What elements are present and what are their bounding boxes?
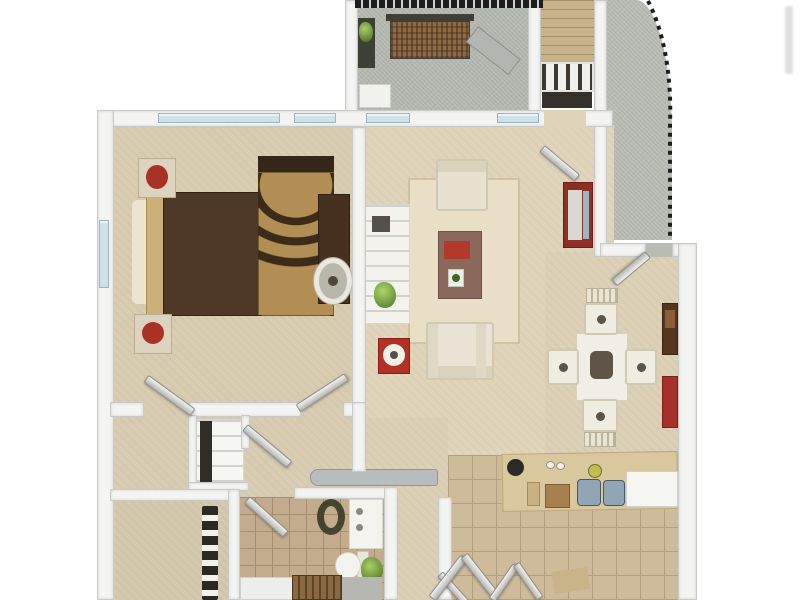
- wall-bathroom-top: [294, 487, 396, 499]
- storage-dark-mat: [542, 92, 592, 108]
- etagere-plant: [374, 282, 396, 308]
- nightstand-top-lamp: [146, 165, 168, 189]
- patio-bench-back: [386, 14, 474, 21]
- counter-bowl: [588, 464, 602, 478]
- kitchen-sink: [507, 459, 524, 476]
- bath-rug: [317, 499, 345, 535]
- hanging-clothes: [202, 506, 218, 600]
- loveseat: [436, 159, 488, 211]
- dining-centerpiece: [590, 351, 613, 379]
- bath-vanity: [349, 499, 383, 549]
- cabinet-drawer: [527, 482, 540, 506]
- stove-burner-right: [603, 480, 625, 506]
- storage-closet-floor: [540, 0, 594, 62]
- wall-art-brown-inner: [665, 310, 675, 328]
- patio-bench-seat: [390, 21, 470, 59]
- dining-chair-back-slats-bottom: [584, 432, 616, 447]
- patio-storage-box: [359, 84, 391, 108]
- wall-bedroom-living: [352, 127, 366, 410]
- bed-duvet: [163, 192, 260, 316]
- bifold-closet-door: [310, 469, 438, 486]
- media-cabinet-inner: [568, 190, 582, 240]
- refrigerator: [626, 471, 678, 507]
- etagere-vase: [372, 216, 390, 232]
- cabinet-door: [545, 484, 570, 508]
- wall-bathroom-left: [228, 489, 240, 600]
- bed-headboard: [146, 188, 164, 316]
- floorplan-canvas: [0, 0, 800, 600]
- sink-basin-left: [546, 461, 555, 469]
- watermark-vertical-text: [785, 6, 793, 74]
- window-bedroom-2: [294, 113, 336, 123]
- patio-screen-railing: [355, 0, 543, 8]
- balcony-door-opening: [646, 243, 672, 257]
- wall-bathroom-right: [384, 487, 398, 600]
- sink-basin-right: [556, 462, 565, 470]
- wall-patio-right: [528, 0, 541, 114]
- wall-patio-left: [345, 0, 358, 114]
- storage-shelf-unit: [540, 62, 594, 92]
- dining-chair-left: [547, 349, 579, 385]
- vanity-faucet-top: [356, 508, 363, 515]
- bathtub-wood-mat: [292, 575, 342, 600]
- balcony-floor: [606, 0, 672, 240]
- patio-planter-greenery: [359, 22, 373, 42]
- wall-hall-vertical: [352, 402, 366, 472]
- wall-unit-right: [678, 243, 697, 600]
- armchair: [426, 322, 494, 380]
- dining-chair-bottom: [582, 399, 618, 432]
- coffee-table-tray: [444, 241, 470, 259]
- wall-art-red: [662, 376, 678, 428]
- linen-closet-dark-side: [200, 421, 212, 483]
- wall-unit-left: [97, 110, 114, 600]
- window-living-2: [497, 113, 539, 123]
- window-living-1: [366, 113, 410, 123]
- patio-door-opening: [544, 110, 586, 127]
- window-bedroom-1: [158, 113, 280, 123]
- vanity-faucet-bottom: [356, 524, 363, 531]
- coffee-table-plant-dot: [452, 274, 460, 282]
- wall-wardrobe-top: [110, 489, 232, 501]
- dining-chair-right: [625, 349, 657, 385]
- dining-chair-back-slats-top: [586, 288, 618, 303]
- window-bedroom-left: [99, 220, 109, 288]
- nightstand-bottom-lamp: [142, 322, 164, 344]
- round-mirror: [314, 258, 352, 304]
- media-cabinet-glass: [583, 191, 589, 239]
- wall-linen-closet-left: [188, 415, 197, 489]
- stove-burner-left: [577, 479, 601, 506]
- dining-chair-top: [584, 303, 618, 335]
- wall-clock-center: [390, 351, 398, 359]
- wall-bedroom-bottom-a: [110, 402, 144, 417]
- wall-storage-balcony: [594, 0, 607, 257]
